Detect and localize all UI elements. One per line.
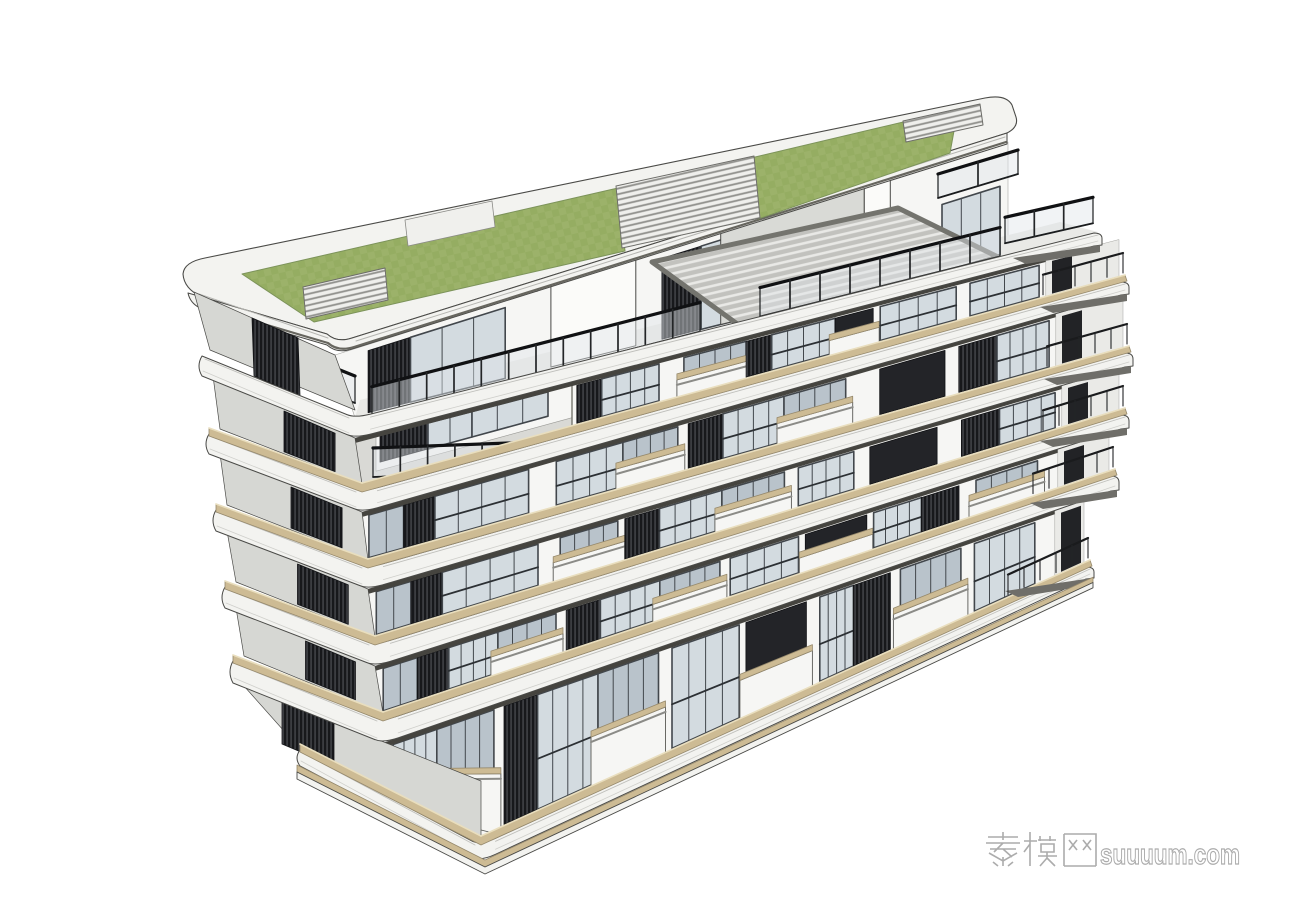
svg-text:suuuum.com: suuuum.com [1100,839,1240,871]
